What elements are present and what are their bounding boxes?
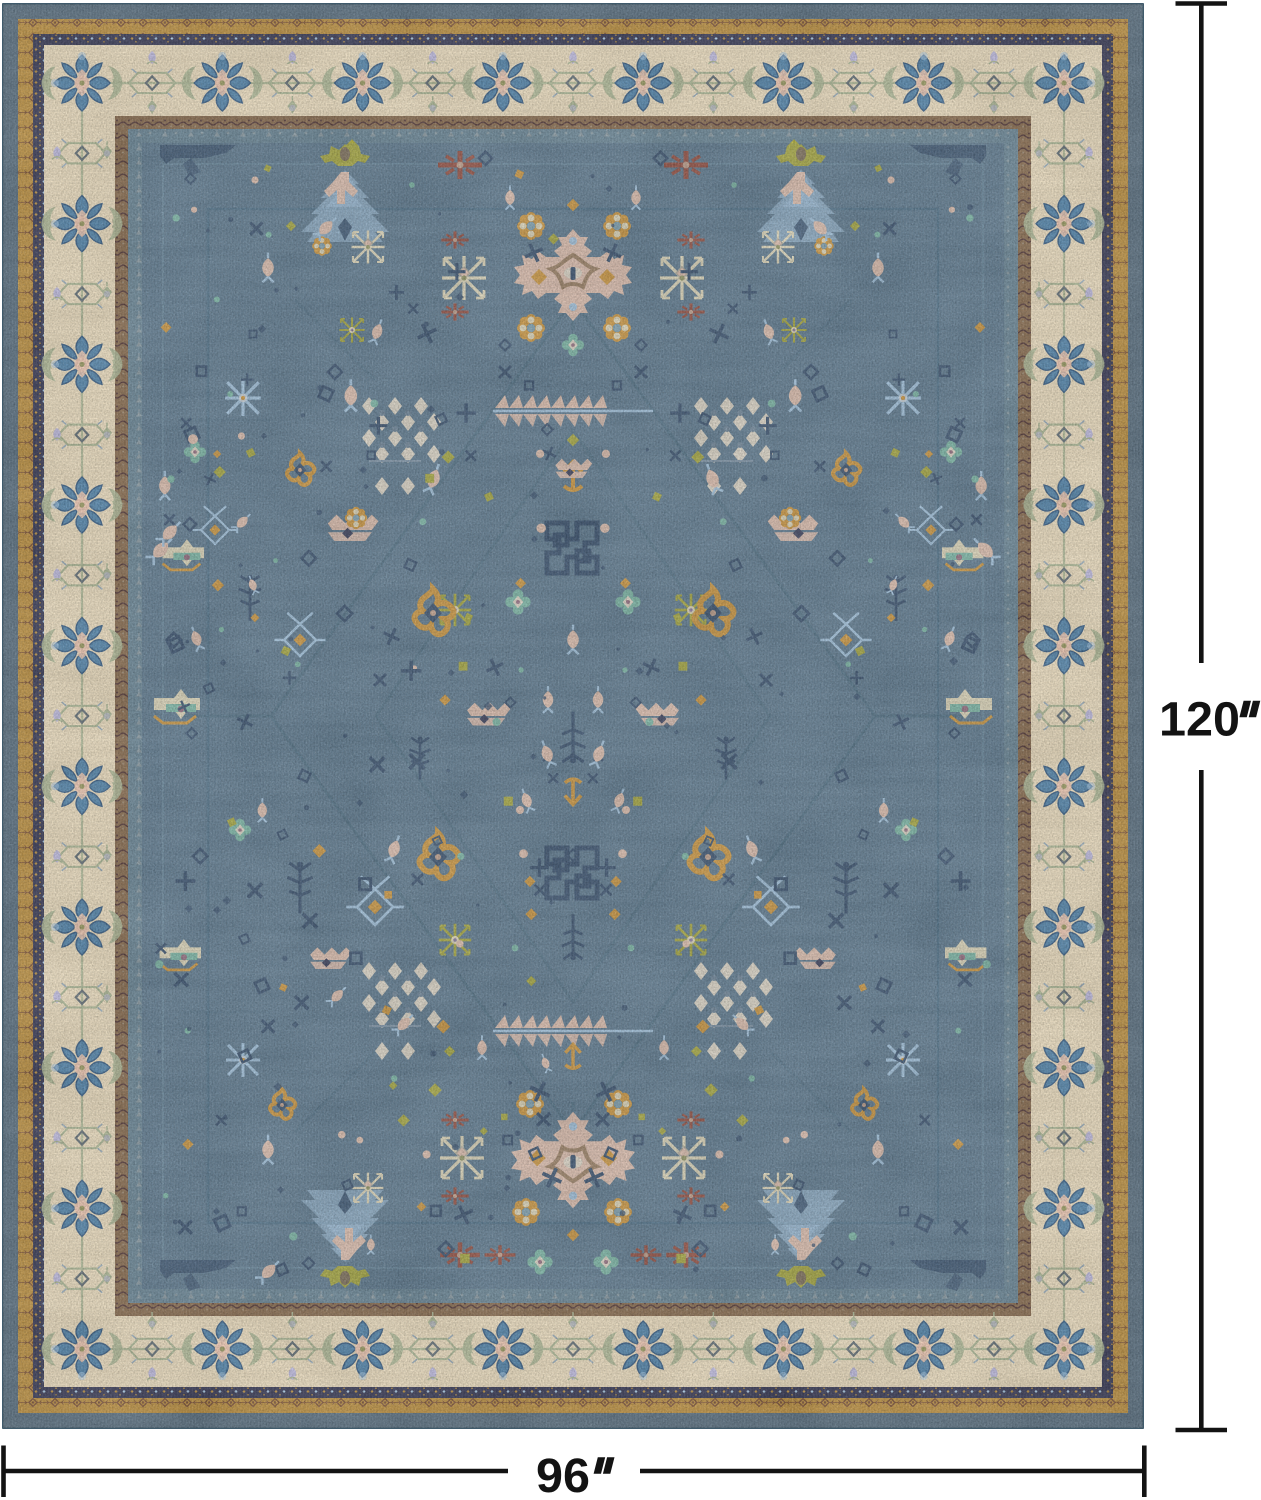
svg-text:120: 120 [1159,693,1240,747]
svg-text:96: 96 [536,1449,590,1500]
